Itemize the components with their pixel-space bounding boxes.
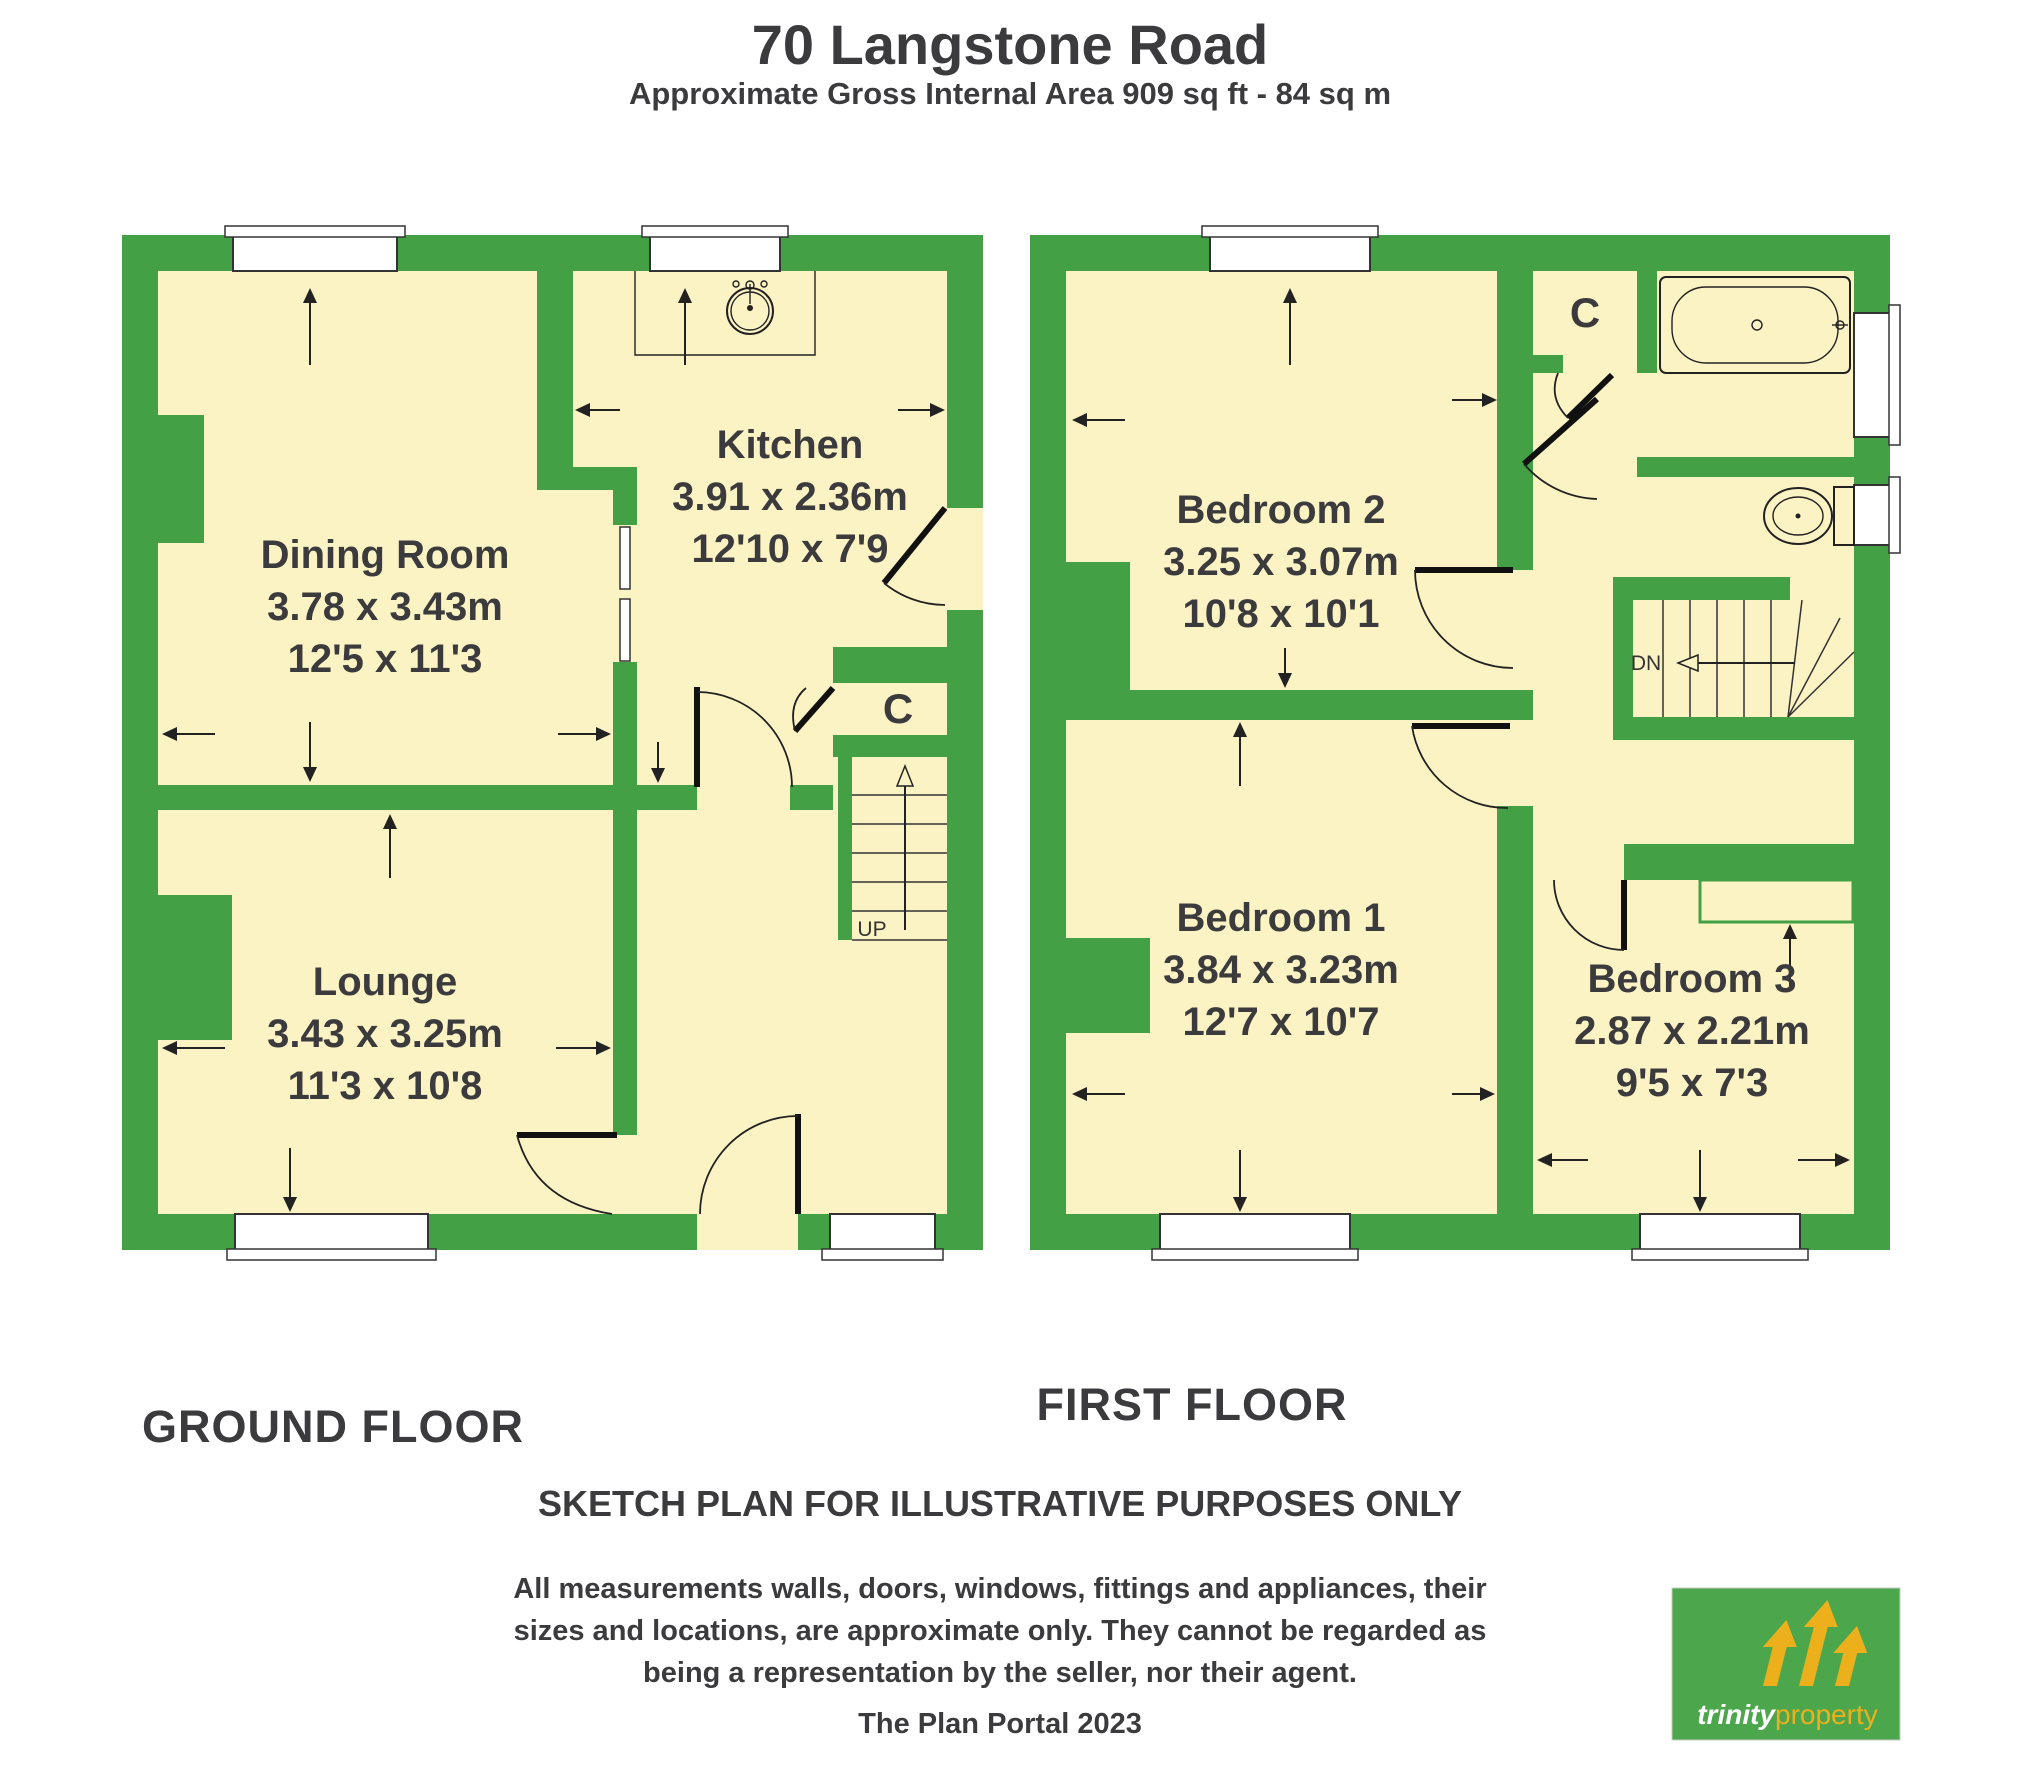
bathroom-window	[1854, 313, 1890, 437]
disclaimer-title: SKETCH PLAN FOR ILLUSTRATIVE PURPOSES ON…	[538, 1483, 1462, 1524]
dining-room-size-metric: 3.78 x 3.43m	[267, 585, 503, 629]
page-title: 70 Langstone Road	[752, 13, 1269, 76]
kitchen-size-imperial: 12'10 x 7'9	[692, 527, 889, 571]
page-subtitle: Approximate Gross Internal Area 909 sq f…	[629, 76, 1391, 111]
lounge-size-imperial: 11'3 x 10'8	[288, 1064, 483, 1108]
kitchen-size-metric: 3.91 x 2.36m	[672, 475, 908, 519]
dining-window	[233, 235, 397, 271]
kitchen-name: Kitchen	[717, 423, 864, 467]
bedroom1-size-metric: 3.84 x 3.23m	[1163, 948, 1399, 992]
dining-kitchen-opening-leaf	[620, 599, 630, 661]
bedroom1-chimney-breast	[1066, 938, 1150, 1033]
stairs-down-label: DN	[1631, 652, 1661, 675]
floorplan-page: 70 Langstone Road Approximate Gross Inte…	[0, 0, 2025, 1766]
stairs-up-label: UP	[857, 918, 886, 941]
first-floor-plan: DN	[1030, 226, 1900, 1260]
bedroom2-chimney-breast	[1066, 562, 1130, 690]
lounge-window	[235, 1214, 428, 1250]
bedroom2-window	[1210, 235, 1370, 271]
bedroom2-size-imperial: 10'8 x 10'1	[1183, 592, 1380, 636]
ground-floor-label: GROUND FLOOR	[142, 1401, 524, 1452]
dining-kitchen-opening-leaf	[620, 527, 630, 589]
lounge-chimney-breast	[158, 895, 232, 1040]
kitchen-window	[650, 235, 780, 271]
bedroom2-size-metric: 3.25 x 3.07m	[1163, 540, 1399, 584]
first-floor-label: FIRST FLOOR	[1037, 1379, 1348, 1430]
hall-window	[830, 1214, 935, 1250]
bedroom3-window	[1640, 1214, 1800, 1250]
disclaimer-line-2: sizes and locations, are approximate onl…	[514, 1615, 1487, 1647]
disclaimer-line-3: being a representation by the seller, no…	[643, 1657, 1357, 1689]
disclaimer-line-1: All measurements walls, doors, windows, …	[513, 1573, 1486, 1605]
side-door-opening	[947, 508, 983, 610]
ground-cupboard-label: C	[883, 685, 913, 732]
floorplan-drawing: 70 Langstone Road Approximate Gross Inte…	[0, 0, 2025, 1766]
plan-credit: The Plan Portal 2023	[858, 1708, 1142, 1740]
lounge-size-metric: 3.43 x 3.25m	[267, 1012, 503, 1056]
front-door-opening	[697, 1214, 798, 1250]
bedroom1-window	[1160, 1214, 1350, 1250]
dining-room-size-imperial: 12'5 x 11'3	[288, 637, 483, 681]
dining-room-name: Dining Room	[261, 533, 510, 577]
bedroom1-size-imperial: 12'7 x 10'7	[1183, 1000, 1380, 1044]
dining-chimney-breast	[158, 415, 204, 543]
bedroom3-size-metric: 2.87 x 2.21m	[1574, 1009, 1810, 1053]
first-cupboard-label: C	[1570, 289, 1600, 336]
bedroom2-name: Bedroom 2	[1177, 488, 1386, 532]
bedroom3-size-imperial: 9'5 x 7'3	[1616, 1061, 1768, 1105]
logo-brand-light: property	[1775, 1699, 1878, 1730]
wc-window	[1854, 485, 1890, 545]
footer: SKETCH PLAN FOR ILLUSTRATIVE PURPOSES ON…	[513, 1483, 1486, 1740]
lounge-name: Lounge	[313, 960, 457, 1004]
bedroom3-name: Bedroom 3	[1588, 957, 1797, 1001]
logo-brand-bold: trinity	[1697, 1699, 1776, 1730]
bedroom1-name: Bedroom 1	[1177, 896, 1386, 940]
trinity-property-logo: trinity property	[1672, 1588, 1900, 1740]
ground-floor-plan: UP Dining Room 3.78 x 3.43m 12'5 x 11'3 …	[122, 226, 983, 1260]
